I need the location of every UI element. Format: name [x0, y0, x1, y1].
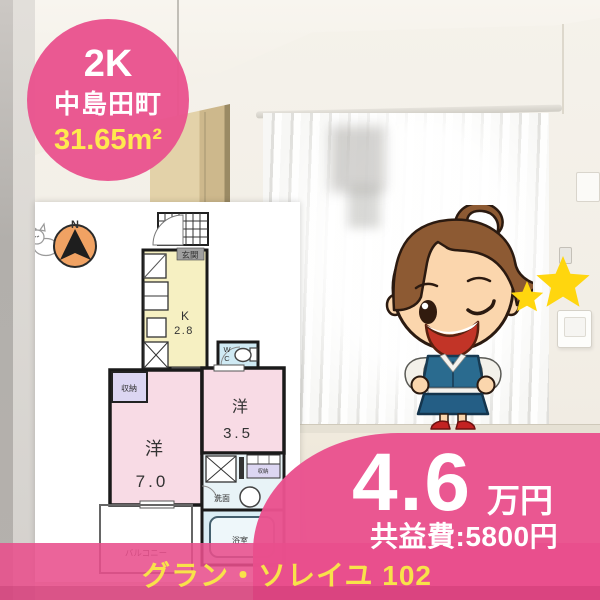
room-sub-label: 洋	[232, 398, 248, 416]
property-listing-card: N 玄関 K 2.8	[0, 0, 600, 600]
washroom-label: 洗面	[214, 493, 230, 503]
entrance-label: 玄関	[181, 250, 198, 260]
photo-door-frame-line	[204, 112, 206, 212]
mascot-eye	[419, 300, 437, 324]
property-badge: 2K 中島田町 31.65m²	[27, 19, 189, 181]
window-mark	[214, 365, 244, 371]
closet-label: 収納	[121, 383, 137, 393]
mascot-skirt	[418, 394, 488, 414]
kitchen-label: K	[181, 309, 189, 323]
photo-left-wall-shadow	[0, 0, 13, 600]
wc-label-c: C	[224, 354, 230, 363]
kitchen-counter	[144, 282, 168, 368]
entrance-porch	[153, 213, 208, 245]
closet-small-label: 収納	[257, 467, 269, 475]
badge-layout: 2K	[84, 45, 133, 85]
badge-town: 中島田町	[54, 91, 162, 118]
badge-area: 31.65m²	[54, 125, 162, 155]
photo-window-shadow	[330, 126, 385, 192]
room-main-size: 7.0	[136, 472, 169, 491]
photo-window-shadow	[348, 186, 380, 228]
wc-label-w: W	[223, 345, 231, 354]
star-icons	[505, 250, 600, 320]
compass-north-label: N	[71, 219, 79, 231]
star-icon	[511, 281, 543, 311]
photo-wall-corner	[562, 24, 564, 114]
star-icon	[536, 256, 589, 307]
kitchen-size-label: 2.8	[174, 325, 194, 337]
room-sub-size: 3.5	[223, 425, 253, 442]
compass-icon	[54, 225, 96, 267]
common-fee: 共益費:5800円	[370, 515, 558, 555]
photo-wall-panel	[576, 172, 600, 202]
mascot-shoe	[456, 421, 475, 429]
room-main-label: 洋	[145, 439, 163, 459]
property-name: グラン・ソレイユ 102	[87, 554, 487, 594]
mascot-shoe	[431, 421, 450, 429]
